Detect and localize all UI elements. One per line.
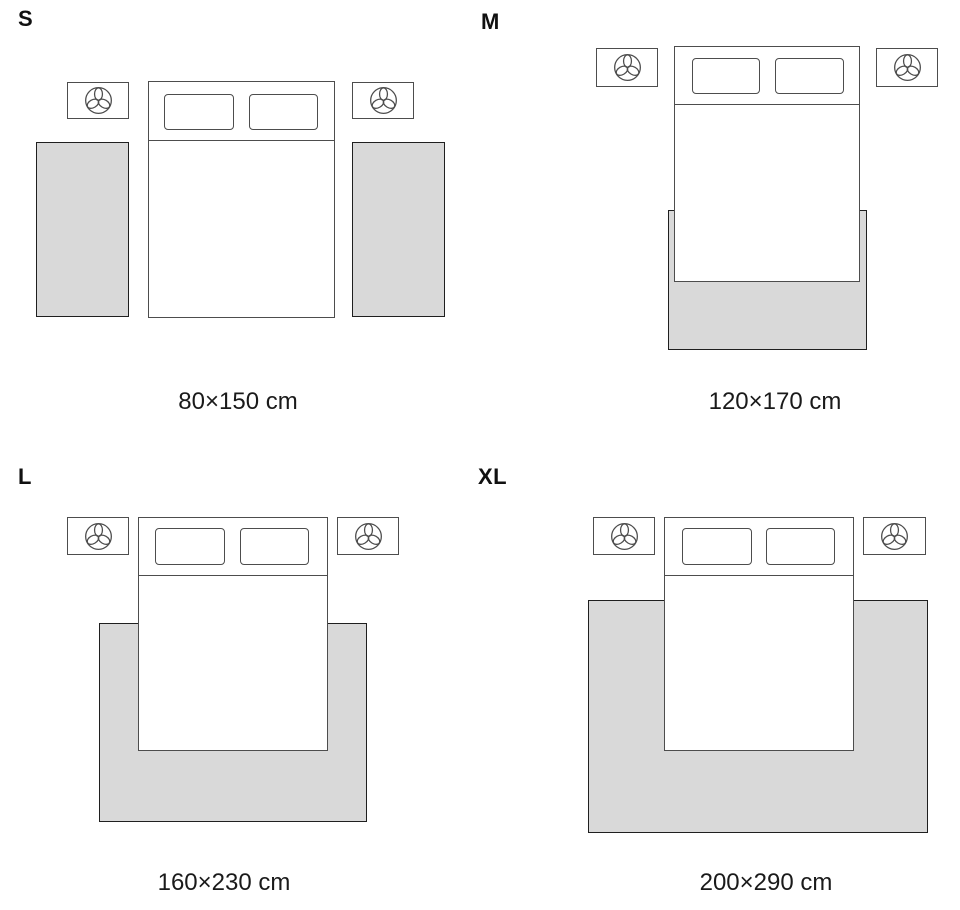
nightstand-left [593,517,655,555]
nightstand-left [67,517,129,555]
dimension-label-s: 80×150 cm [98,388,378,416]
headboard-divider [675,104,859,105]
headboard-divider [139,575,327,576]
pillow-left [155,528,225,565]
bed [148,81,335,318]
pillow-right [249,94,318,130]
lamp-icon [878,520,911,553]
dimension-label-xl: 200×290 cm [626,869,906,897]
nightstand-right [863,517,926,555]
size-letter-xl: XL [478,464,507,490]
nightstand-left [67,82,129,119]
lamp-icon [891,51,924,84]
lamp-icon [608,520,641,553]
nightstand-right [352,82,414,119]
bed [664,517,854,751]
pillow-left [164,94,234,130]
nightstand-right [876,48,938,87]
pillow-right [240,528,309,565]
lamp-icon [82,520,115,553]
dimension-label-m: 120×170 cm [635,388,915,416]
pillow-right [775,58,844,94]
size-letter-l: L [18,464,32,490]
bed [138,517,328,751]
rug-runner-right [352,142,445,317]
lamp-icon [367,84,400,117]
nightstand-right [337,517,399,555]
dimension-label-l: 160×230 cm [84,869,364,897]
rug-runner-left [36,142,129,317]
pillow-left [692,58,760,94]
lamp-icon [82,84,115,117]
rug-size-guide: S 80×150 cm M [0,0,960,910]
headboard-divider [149,140,334,141]
nightstand-left [596,48,658,87]
headboard-divider [665,575,853,576]
lamp-icon [352,520,385,553]
lamp-icon [611,51,644,84]
pillow-right [766,528,835,565]
size-letter-m: M [481,9,500,35]
bed [674,46,860,282]
size-letter-s: S [18,6,33,32]
pillow-left [682,528,752,565]
